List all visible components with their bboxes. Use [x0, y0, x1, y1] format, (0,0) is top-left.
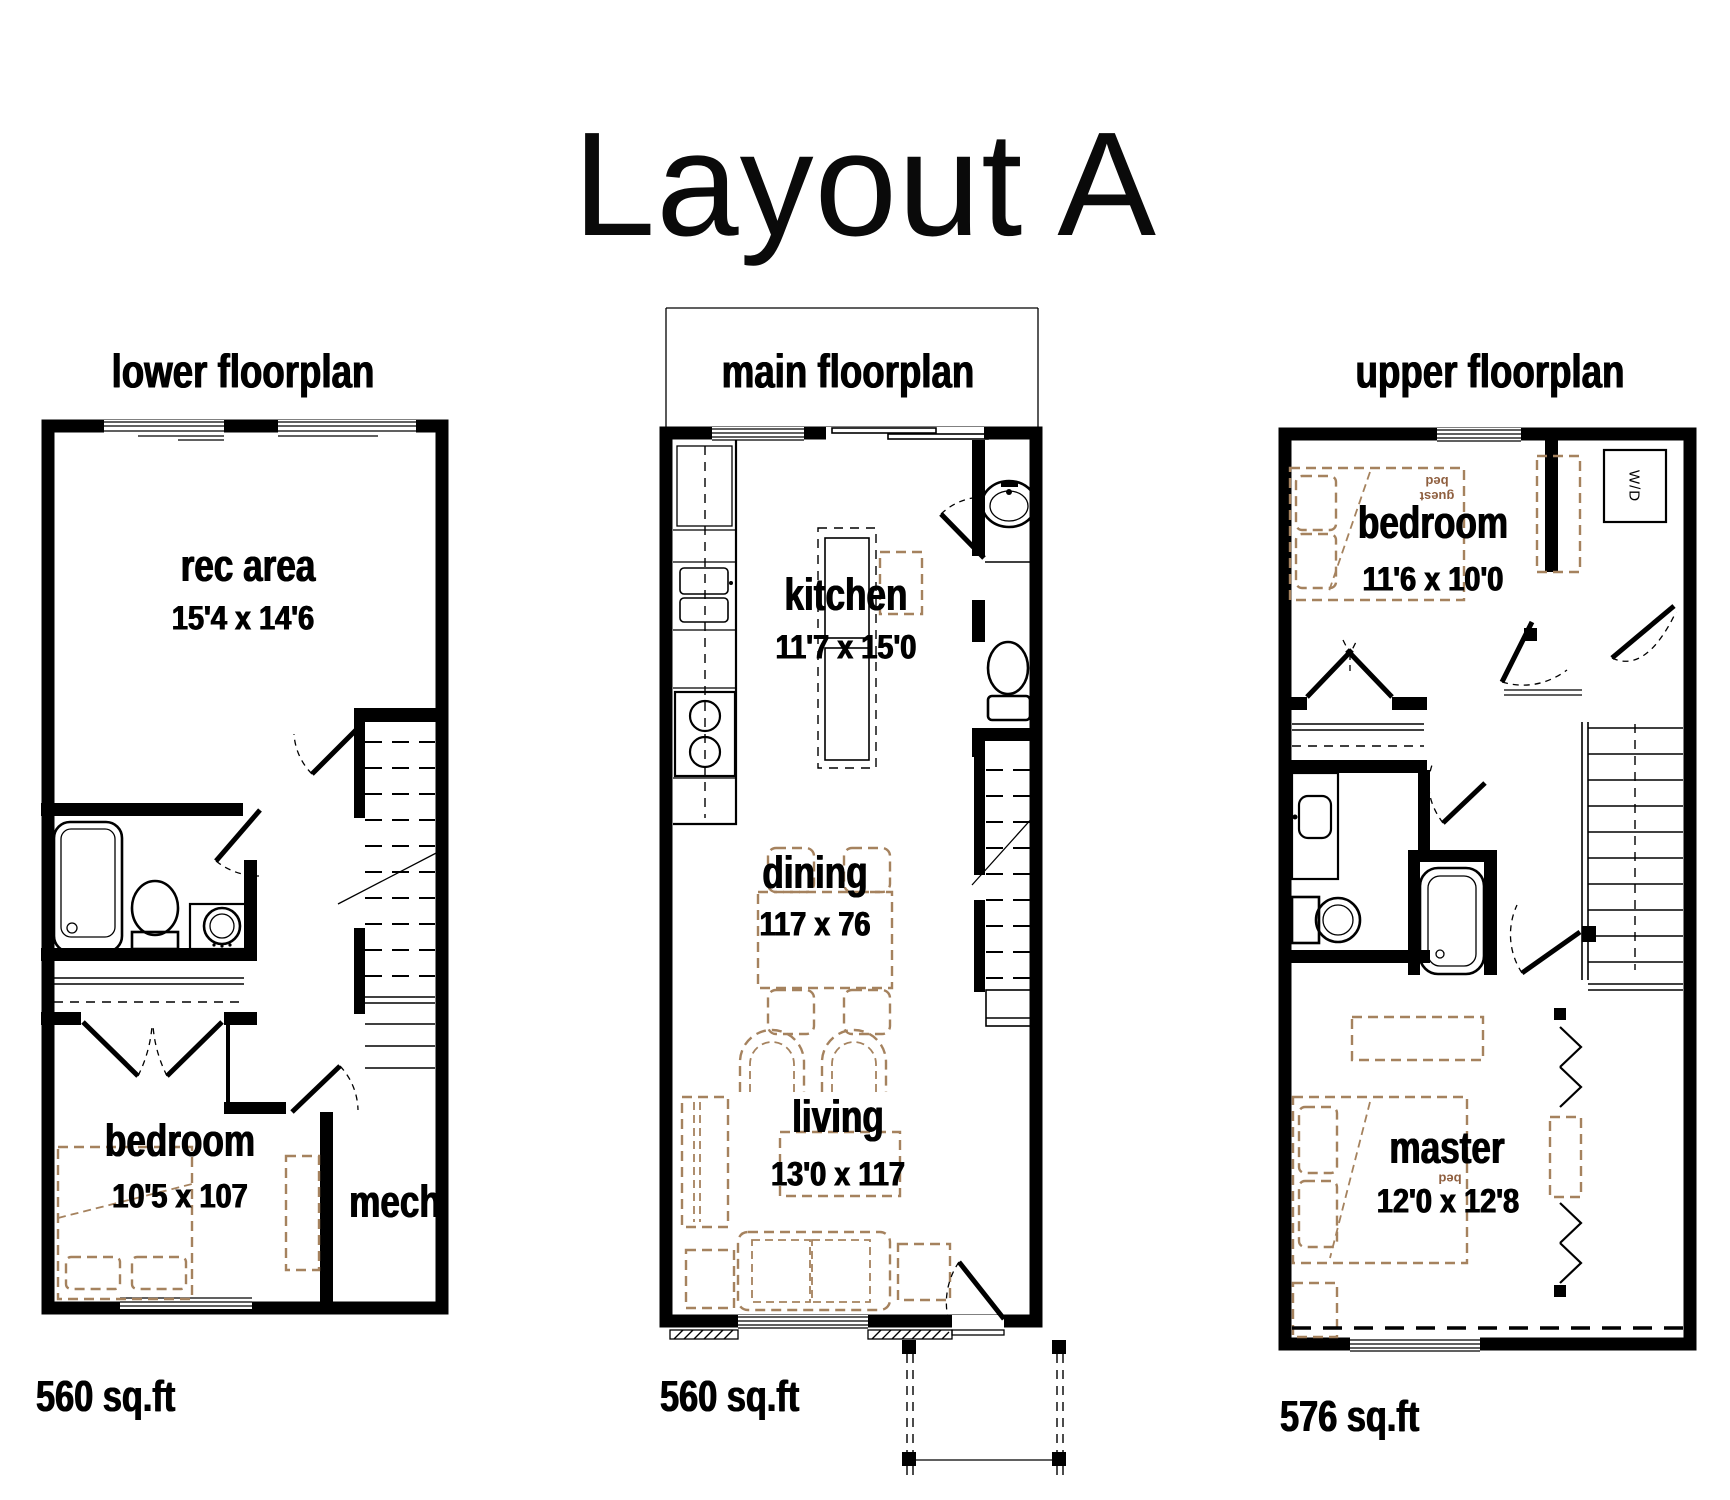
room-label-mech: mech: [349, 1176, 441, 1228]
sofa-outline: [738, 1232, 890, 1310]
page-title: Layout A: [0, 100, 1730, 270]
room-dims-dining: 117 x 76: [760, 906, 871, 945]
main-top-windows: [712, 427, 988, 440]
upper-sqft-label: 576 sq.ft: [1280, 1392, 1419, 1442]
room-dims-master: 12'0 x 12'8: [1377, 1183, 1519, 1222]
kitchen-counter: [673, 440, 736, 824]
property-lines: [666, 308, 1038, 427]
room-label-kitchen: kitchen: [785, 569, 908, 621]
room-dims-kitchen: 11'7 x 15'0: [776, 629, 917, 668]
mech-wall: [320, 1112, 333, 1308]
room-label-master: master: [1389, 1122, 1504, 1174]
upper-toilet-icon: [1292, 897, 1360, 943]
lower-sqft-label: 560 sq.ft: [36, 1372, 175, 1422]
room-dims-rec-area: 15'4 x 14'6: [172, 600, 314, 639]
bathroom-right-wall: [244, 860, 257, 950]
room-label-living: living: [792, 1091, 884, 1143]
hall-closet: [1285, 640, 1427, 773]
upper-bottom-window: [1350, 1337, 1480, 1351]
lower-stairs: [294, 708, 442, 1068]
bathroom-door-upper: [1429, 765, 1485, 823]
washer-dryer-label: W/D: [1626, 470, 1643, 502]
room-dims-living: 13'0 x 117: [771, 1156, 905, 1195]
powder-sink-icon: [982, 481, 1036, 527]
upper-top-window: [1437, 428, 1521, 441]
bathtub-icon: [54, 822, 122, 952]
wd-closet-door: [1612, 606, 1676, 661]
lower-closet: [41, 978, 257, 1025]
room-label-dining: dining: [762, 847, 867, 899]
upper-dresser-outline: [1537, 456, 1580, 572]
main-stairs: [972, 757, 1034, 1026]
room-label-upper-bedroom: bedroom: [1358, 497, 1508, 549]
room-dims-lower-bedroom: 10'5 x 107: [112, 1178, 247, 1217]
bench-outline: [1352, 1017, 1483, 1060]
deck: [902, 1340, 1066, 1480]
vanity-sink-icon: [1292, 773, 1338, 879]
bathroom-bottom-wall: [41, 948, 257, 961]
powder-room: [941, 440, 1036, 757]
room-dims-upper-bedroom: 11'6 x 10'0: [1363, 561, 1504, 600]
powder-toilet-icon: [988, 642, 1030, 720]
bed-outline: [58, 1147, 192, 1299]
room-label-lower-bedroom: bedroom: [105, 1115, 255, 1167]
window-sills: [670, 1330, 952, 1339]
upper-bathroom: [1285, 765, 1497, 975]
lower-floorplan-header: lower floorplan: [112, 344, 375, 399]
stairs-door: [1510, 905, 1580, 973]
main-bottom-windows: [738, 1315, 868, 1328]
master-closet-bifold: [1550, 1008, 1581, 1297]
mech-door: [292, 1066, 358, 1112]
bedroom-right-wall: [1545, 440, 1558, 572]
toilet-icon: [132, 881, 178, 949]
floorplan-sheet: Layout A lower floorplan: [0, 0, 1730, 1500]
entry-door: [946, 1262, 1004, 1335]
bathroom-top-wall: [41, 803, 243, 816]
upper-bedroom-door: [1502, 622, 1567, 685]
room-label-rec-area: rec area: [181, 540, 316, 592]
kitchen-sink-icon: [680, 568, 733, 622]
hall-bottom-wall: [224, 1102, 286, 1114]
dresser-outline: [286, 1156, 319, 1270]
upper-stairs: [1510, 722, 1683, 990]
bedroom-double-doors: [83, 1022, 222, 1076]
main-sqft-label: 560 sq.ft: [660, 1372, 799, 1422]
